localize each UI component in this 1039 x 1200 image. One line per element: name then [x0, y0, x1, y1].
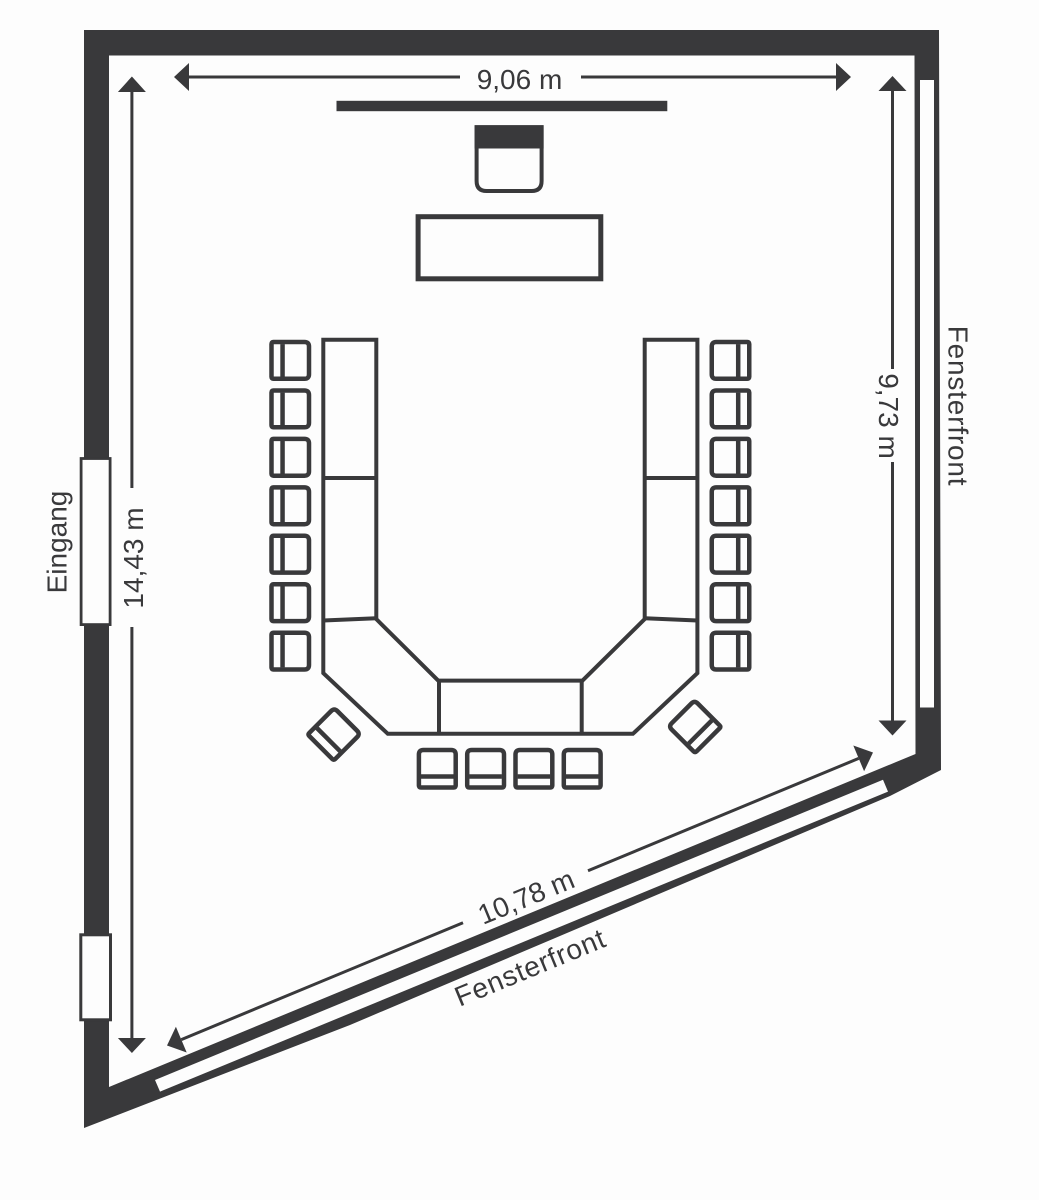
svg-text:14,43 m: 14,43 m	[118, 507, 149, 608]
svg-text:9,73 m: 9,73 m	[873, 373, 904, 459]
svg-text:9,06 m: 9,06 m	[477, 64, 563, 95]
svg-text:Eingang: Eingang	[42, 491, 73, 594]
svg-text:Fensterfront: Fensterfront	[943, 326, 974, 487]
